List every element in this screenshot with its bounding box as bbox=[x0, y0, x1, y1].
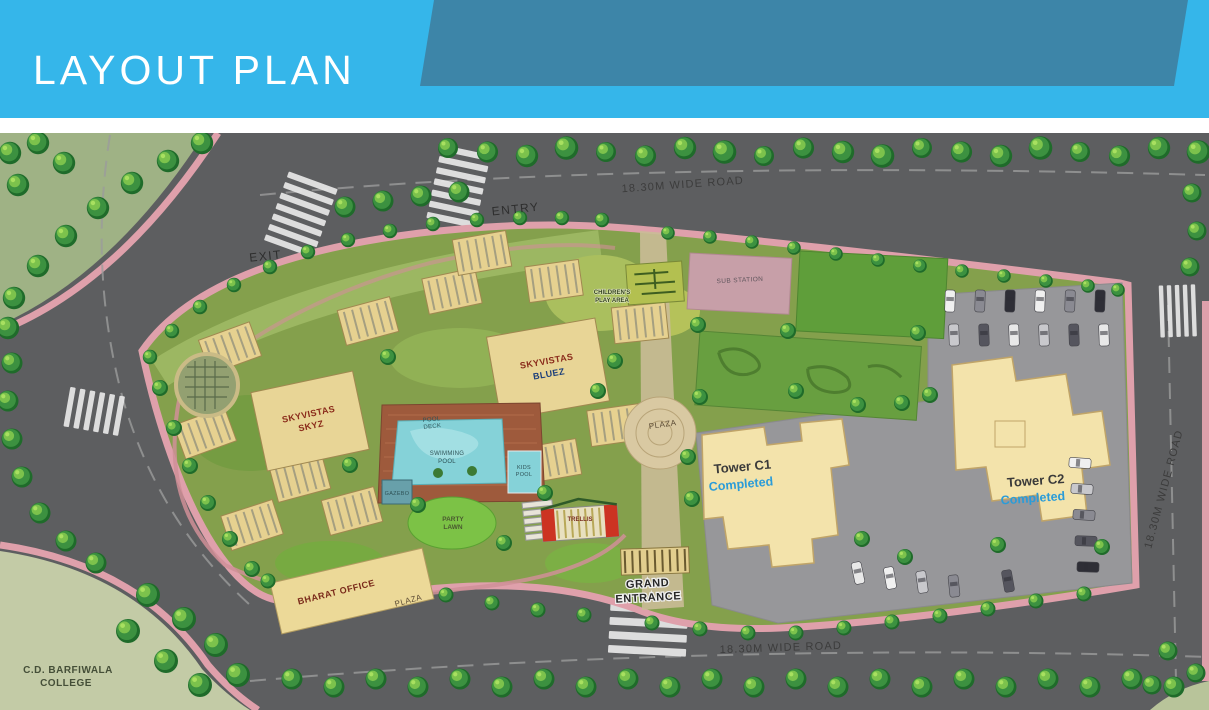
tree-icon bbox=[997, 269, 1011, 283]
tree-icon bbox=[922, 387, 938, 403]
parked-car bbox=[1073, 509, 1096, 521]
tree-icon bbox=[894, 395, 910, 411]
tree-icon bbox=[680, 449, 696, 465]
parked-car bbox=[1035, 290, 1046, 312]
tree-icon bbox=[227, 278, 241, 292]
tree-icon bbox=[555, 136, 579, 160]
tree-icon bbox=[607, 353, 623, 369]
parked-car bbox=[1077, 562, 1099, 573]
tree-icon bbox=[955, 264, 969, 278]
tree-icon bbox=[912, 138, 932, 158]
tree-icon bbox=[485, 596, 500, 611]
tree-icon bbox=[713, 140, 737, 164]
trellis-label: TRELLIS bbox=[568, 517, 593, 523]
tree-icon bbox=[516, 145, 538, 167]
page-title: LAYOUT PLAN bbox=[33, 50, 356, 91]
parked-car bbox=[1039, 324, 1050, 346]
tree-icon bbox=[200, 495, 216, 511]
tree-icon bbox=[439, 588, 454, 603]
tree-icon bbox=[850, 397, 866, 413]
tree-icon bbox=[910, 325, 926, 341]
tree-icon bbox=[226, 663, 250, 687]
tree-icon bbox=[531, 603, 546, 618]
tree-icon bbox=[470, 213, 484, 227]
tree-icon bbox=[383, 224, 397, 238]
tree-icon bbox=[1181, 258, 1200, 277]
children-play-area-label: PLAY AREA bbox=[595, 298, 629, 304]
tree-icon bbox=[143, 350, 157, 364]
tree-icon bbox=[645, 616, 660, 631]
tree-icon bbox=[996, 677, 1017, 698]
tree-icon bbox=[1080, 677, 1101, 698]
svg-text:KIDS: KIDS bbox=[517, 465, 531, 471]
tree-icon bbox=[702, 669, 723, 690]
tree-icon bbox=[27, 255, 49, 277]
tree-icon bbox=[1077, 587, 1092, 602]
svg-text:GRAND: GRAND bbox=[626, 577, 670, 591]
tree-icon bbox=[690, 317, 706, 333]
tree-icon bbox=[204, 633, 228, 657]
tree-icon bbox=[793, 137, 814, 158]
tree-icon bbox=[754, 146, 774, 166]
tree-icon bbox=[166, 420, 182, 436]
tree-icon bbox=[618, 669, 639, 690]
tree-icon bbox=[745, 235, 759, 249]
tree-icon bbox=[555, 211, 569, 225]
tree-icon bbox=[1109, 145, 1130, 166]
parked-car bbox=[1009, 324, 1020, 346]
tree-icon bbox=[829, 247, 843, 261]
tree-icon bbox=[1148, 137, 1170, 159]
tree-icon bbox=[188, 673, 212, 697]
tree-icon bbox=[154, 649, 178, 673]
tree-icon bbox=[3, 287, 25, 309]
tree-icon bbox=[786, 669, 807, 690]
pool-deck-label: POOL DECK bbox=[422, 416, 441, 431]
tree-icon bbox=[165, 324, 179, 338]
tree-icon bbox=[693, 622, 708, 637]
tree-icon bbox=[854, 531, 870, 547]
tree-icon bbox=[182, 458, 198, 474]
tree-icon bbox=[7, 174, 29, 196]
tree-icon bbox=[55, 225, 77, 247]
tree-icon bbox=[1143, 676, 1162, 695]
tree-icon bbox=[635, 145, 656, 166]
tree-icon bbox=[86, 553, 107, 574]
tree-icon bbox=[438, 138, 458, 158]
tree-icon bbox=[990, 537, 1006, 553]
tree-icon bbox=[780, 323, 796, 339]
tree-icon bbox=[674, 137, 696, 159]
tree-icon bbox=[660, 677, 681, 698]
parked-car bbox=[1095, 290, 1106, 312]
svg-text:COLLEGE: COLLEGE bbox=[40, 678, 92, 689]
tree-icon bbox=[590, 383, 606, 399]
tree-icon bbox=[912, 677, 933, 698]
parked-car bbox=[948, 575, 960, 598]
tree-icon bbox=[152, 380, 168, 396]
tree-icon bbox=[951, 141, 972, 162]
tree-icon bbox=[366, 669, 387, 690]
tree-icon bbox=[53, 152, 75, 174]
parked-car bbox=[979, 324, 990, 346]
tree-icon bbox=[576, 677, 597, 698]
tree-icon bbox=[408, 677, 429, 698]
residential-wing bbox=[525, 259, 583, 302]
tree-icon bbox=[1081, 279, 1095, 293]
tree-icon bbox=[87, 197, 109, 219]
tree-icon bbox=[492, 677, 513, 698]
tree-icon bbox=[788, 383, 804, 399]
tree-icon bbox=[1029, 594, 1044, 609]
svg-text:POOL: POOL bbox=[516, 472, 532, 478]
tree-icon bbox=[990, 145, 1012, 167]
tree-icon bbox=[12, 467, 33, 488]
tree-icon bbox=[954, 669, 975, 690]
site-plan-illustration: 18.30M WIDE ROAD 18.30M WIDE ROAD 18.30M… bbox=[0, 133, 1209, 710]
children-play-area-label: CHILDREN'S bbox=[594, 290, 630, 296]
tree-icon bbox=[837, 621, 852, 636]
tree-icon bbox=[477, 141, 498, 162]
tree-icon bbox=[1164, 677, 1185, 698]
tree-icon bbox=[136, 583, 160, 607]
tree-icon bbox=[870, 669, 891, 690]
tree-icon bbox=[121, 172, 143, 194]
svg-text:POOL: POOL bbox=[438, 459, 456, 465]
party-lawn-label: PARTY LAWN bbox=[442, 516, 464, 531]
svg-text:C.D. BARFIWALA: C.D. BARFIWALA bbox=[23, 665, 113, 676]
tree-icon bbox=[789, 626, 804, 641]
tree-icon bbox=[871, 144, 895, 168]
tree-icon bbox=[684, 491, 700, 507]
parked-car bbox=[1075, 536, 1097, 547]
residential-wing bbox=[611, 302, 668, 343]
tree-icon bbox=[410, 497, 426, 513]
tree-icon bbox=[342, 457, 358, 473]
tree-icon bbox=[1038, 669, 1059, 690]
svg-text:LAWN: LAWN bbox=[443, 524, 462, 531]
tree-icon bbox=[1070, 142, 1090, 162]
header-accent-shape bbox=[420, 0, 1188, 86]
tree-icon bbox=[871, 253, 885, 267]
tree-icon bbox=[282, 669, 303, 690]
tree-icon bbox=[172, 607, 196, 631]
tree-icon bbox=[56, 531, 77, 552]
parked-car bbox=[1099, 324, 1110, 346]
tree-icon bbox=[335, 197, 356, 218]
tree-icon bbox=[828, 677, 849, 698]
tree-icon bbox=[744, 677, 765, 698]
tree-icon bbox=[373, 191, 394, 212]
tree-icon bbox=[741, 626, 756, 641]
tree-icon bbox=[426, 217, 440, 231]
parked-car bbox=[1005, 290, 1016, 312]
tree-icon bbox=[157, 150, 179, 172]
tree-icon bbox=[1029, 136, 1053, 160]
tree-icon bbox=[2, 429, 23, 450]
tree-icon bbox=[244, 561, 260, 577]
page: LAYOUT PLAN bbox=[0, 0, 1209, 710]
tree-icon bbox=[1187, 664, 1206, 683]
parked-car bbox=[975, 290, 986, 312]
tree-icon bbox=[692, 389, 708, 405]
tower-annex bbox=[995, 421, 1025, 447]
tree-icon bbox=[787, 241, 801, 255]
tree-icon bbox=[577, 608, 592, 623]
tree-icon bbox=[324, 677, 345, 698]
tree-icon bbox=[116, 619, 140, 643]
circular-garden bbox=[176, 354, 238, 416]
tree-icon bbox=[885, 615, 900, 630]
tree-icon bbox=[534, 669, 555, 690]
tree-icon bbox=[933, 609, 948, 624]
tree-icon bbox=[1094, 539, 1110, 555]
tree-icon bbox=[496, 535, 512, 551]
tree-icon bbox=[341, 233, 355, 247]
tree-icon bbox=[411, 186, 432, 207]
parked-car bbox=[949, 324, 960, 346]
parked-car bbox=[945, 290, 956, 312]
parked-car bbox=[1065, 290, 1076, 312]
tree-icon bbox=[449, 182, 470, 203]
tree-icon bbox=[537, 485, 553, 501]
tree-icon bbox=[1188, 222, 1207, 241]
tree-icon bbox=[913, 259, 927, 273]
parked-car bbox=[1069, 457, 1092, 469]
svg-text:SWIMMING: SWIMMING bbox=[430, 451, 464, 457]
grand-entrance-gate bbox=[621, 547, 690, 575]
tree-icon bbox=[193, 300, 207, 314]
tree-icon bbox=[1111, 283, 1125, 297]
gazebo-label: GAZEBO bbox=[385, 491, 410, 497]
tree-icon bbox=[1039, 274, 1053, 288]
tree-icon bbox=[380, 349, 396, 365]
tree-icon bbox=[1159, 642, 1178, 661]
header-banner: LAYOUT PLAN bbox=[0, 0, 1209, 118]
kids-pool-label: KIDS POOL bbox=[516, 465, 532, 478]
tree-icon bbox=[30, 503, 51, 524]
parked-car bbox=[1069, 324, 1080, 346]
tree-icon bbox=[1122, 669, 1143, 690]
parked-car bbox=[1071, 483, 1094, 495]
road-edge bbox=[1202, 301, 1209, 681]
tree-icon bbox=[897, 549, 913, 565]
lawn-central bbox=[695, 331, 922, 420]
tree-icon bbox=[450, 669, 471, 690]
tree-icon bbox=[595, 213, 609, 227]
tree-icon bbox=[981, 602, 996, 617]
tree-icon bbox=[222, 531, 238, 547]
tree-icon bbox=[596, 142, 616, 162]
tree-icon bbox=[661, 226, 675, 240]
tree-icon bbox=[1183, 184, 1202, 203]
tree-icon bbox=[301, 245, 315, 259]
tree-icon bbox=[703, 230, 717, 244]
svg-text:PARTY: PARTY bbox=[442, 516, 464, 523]
tree-icon bbox=[261, 574, 276, 589]
tree-icon bbox=[2, 353, 23, 374]
hedge-garden bbox=[626, 261, 685, 305]
tree-icon bbox=[832, 141, 854, 163]
